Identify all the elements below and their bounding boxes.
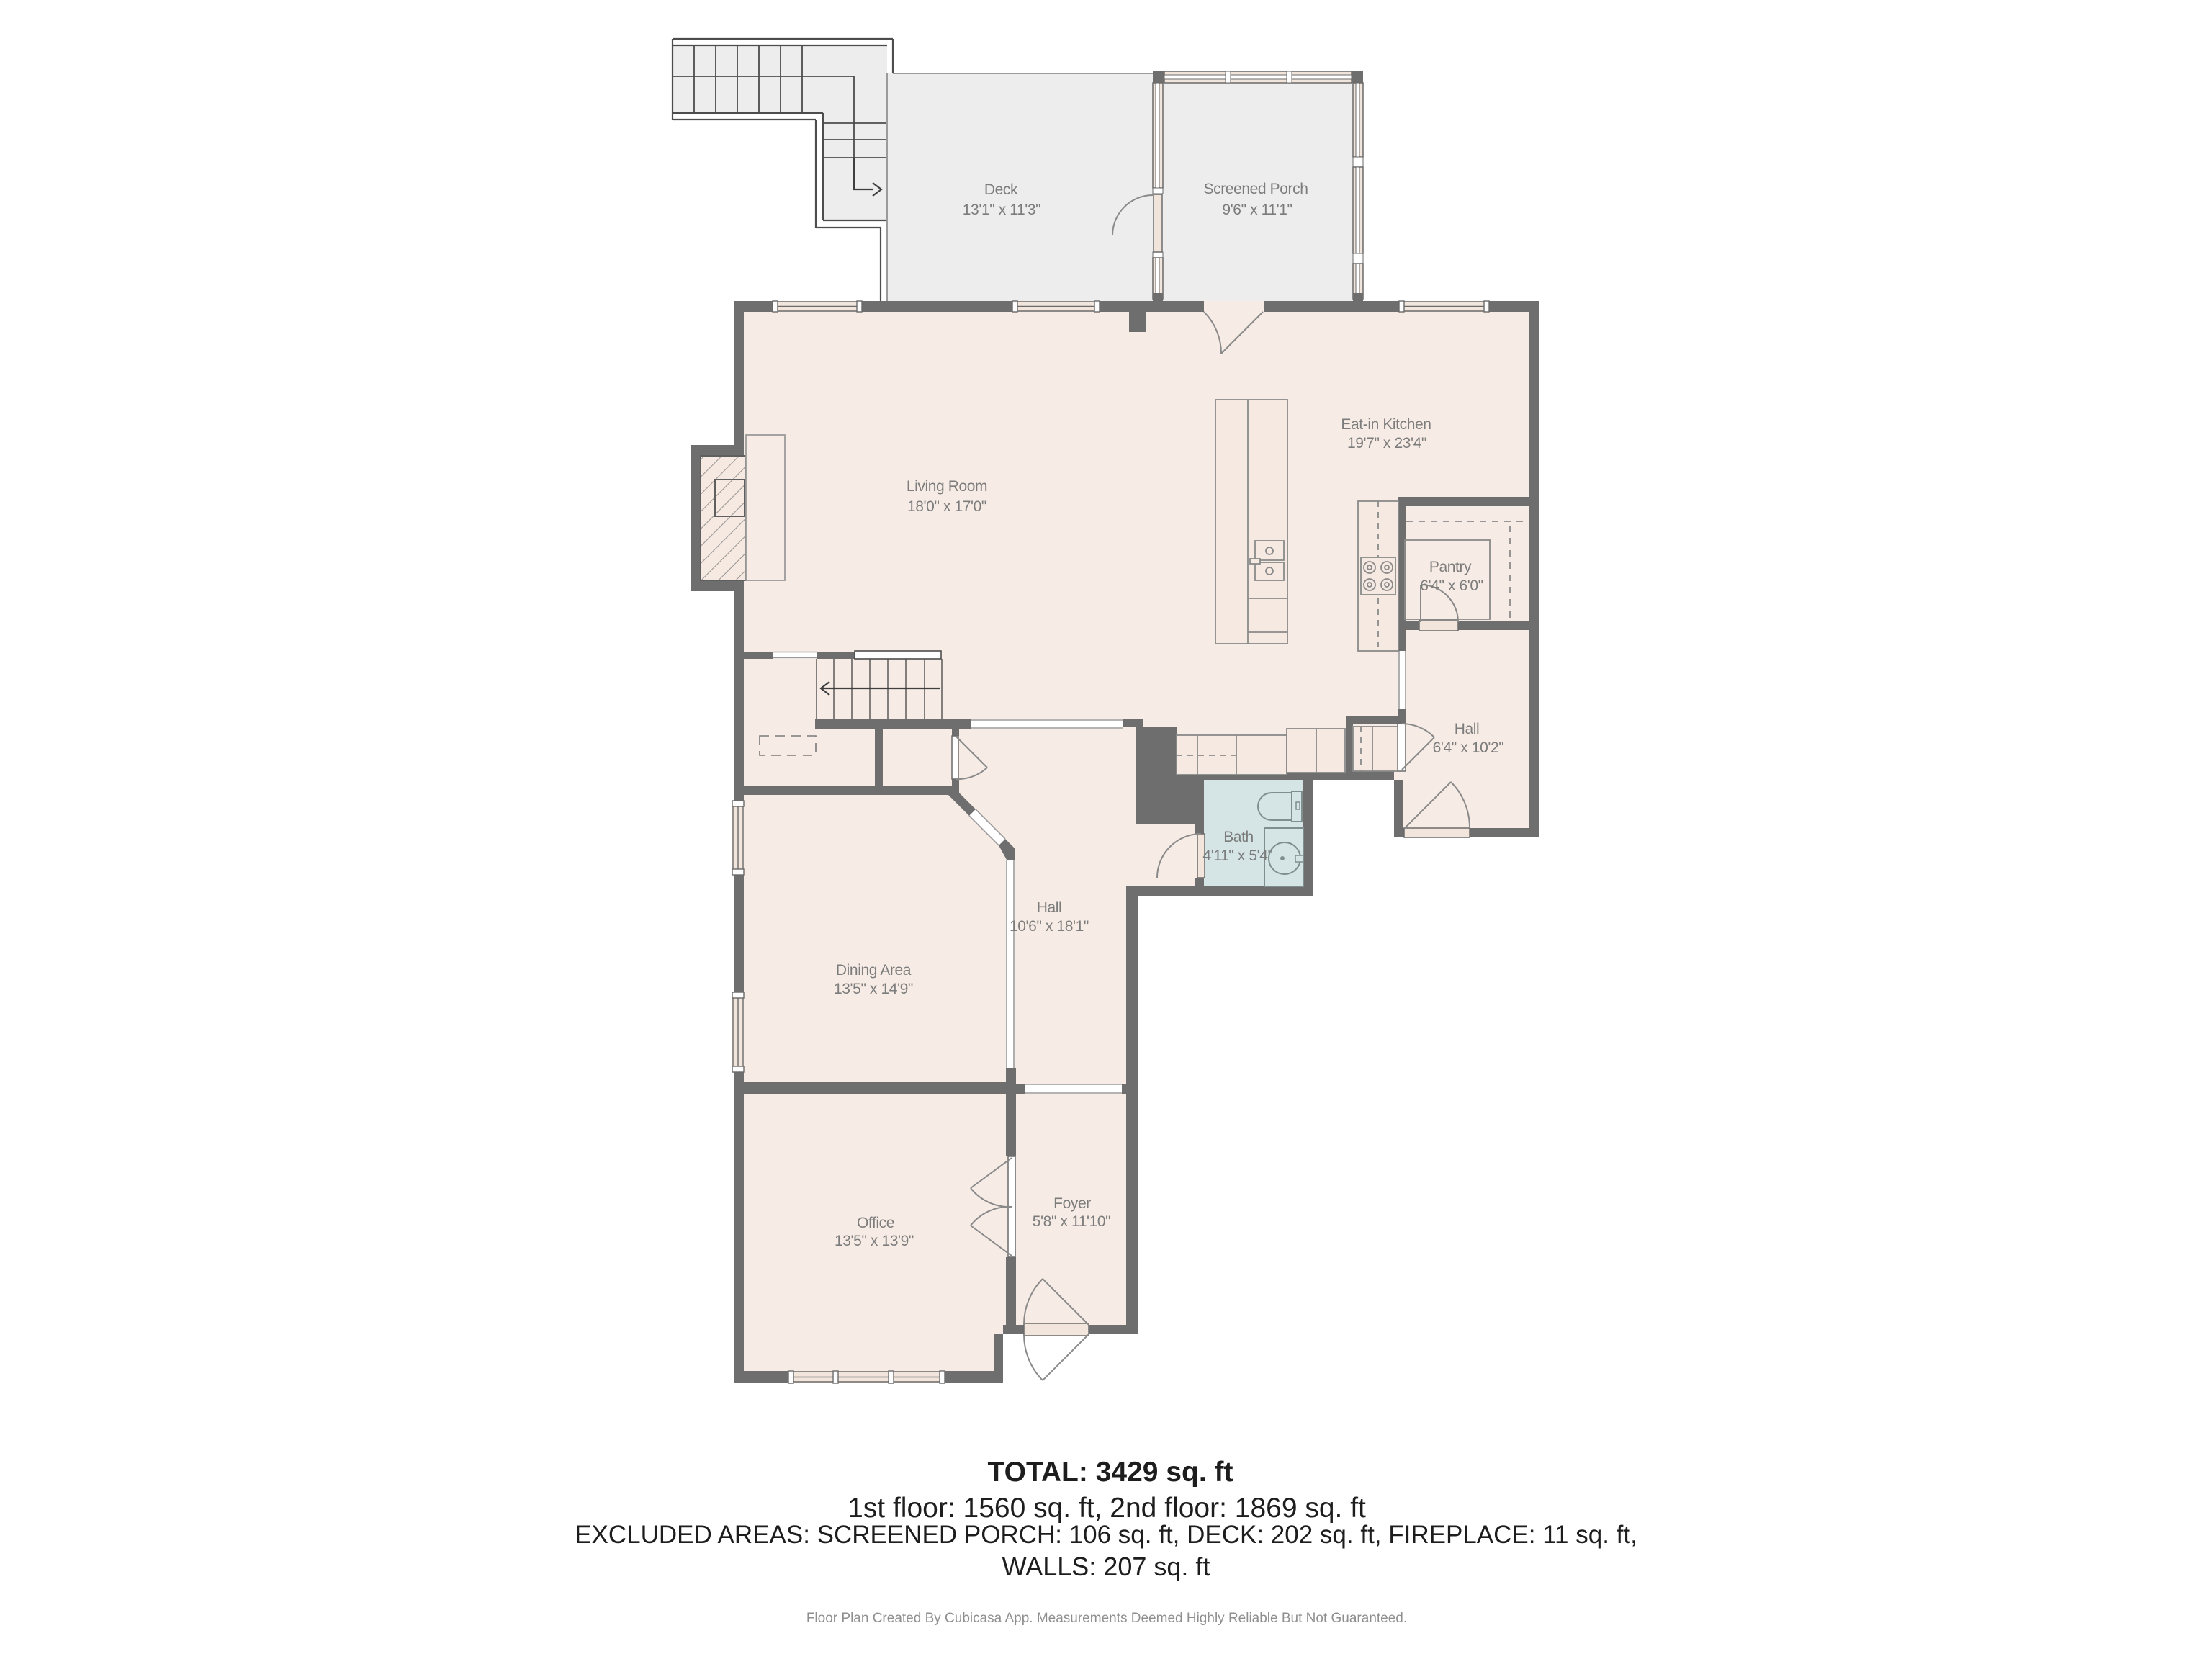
svg-text:13'5" x 13'9": 13'5" x 13'9"	[835, 1233, 914, 1249]
svg-text:Hall: Hall	[1455, 721, 1480, 737]
svg-text:Hall: Hall	[1037, 899, 1062, 916]
svg-text:Eat-in Kitchen: Eat-in Kitchen	[1341, 416, 1431, 433]
svg-text:Floor Plan Created By Cubicasa: Floor Plan Created By Cubicasa App. Meas…	[806, 1611, 1407, 1626]
svg-text:13'5" x 14'9": 13'5" x 14'9"	[834, 981, 913, 997]
svg-text:Dining Area: Dining Area	[836, 962, 912, 979]
svg-text:10'6" x 18'1": 10'6" x 18'1"	[1010, 918, 1089, 935]
svg-text:Pantry: Pantry	[1429, 559, 1472, 575]
svg-text:Screened Porch: Screened Porch	[1204, 181, 1308, 197]
svg-text:6'4" x 10'2": 6'4" x 10'2"	[1433, 739, 1504, 756]
svg-text:EXCLUDED AREAS: SCREENED PORCH: EXCLUDED AREAS: SCREENED PORCH: 106 sq. …	[575, 1521, 1637, 1549]
svg-text:1st floor: 1560 sq. ft, 2nd fl: 1st floor: 1560 sq. ft, 2nd floor: 1869 …	[848, 1493, 1366, 1524]
svg-text:18'0" x 17'0": 18'0" x 17'0"	[907, 498, 986, 515]
svg-text:13'1" x 11'3": 13'1" x 11'3"	[963, 202, 1040, 218]
svg-text:Bath: Bath	[1223, 829, 1254, 845]
svg-text:TOTAL: 3429 sq. ft: TOTAL: 3429 sq. ft	[988, 1457, 1233, 1488]
svg-text:Foyer: Foyer	[1053, 1195, 1091, 1212]
svg-text:5'8" x 11'10": 5'8" x 11'10"	[1033, 1213, 1110, 1230]
svg-text:9'6" x 11'1": 9'6" x 11'1"	[1222, 202, 1292, 218]
svg-text:Deck: Deck	[984, 181, 1018, 198]
svg-text:Office: Office	[857, 1215, 894, 1231]
svg-text:4'11" x 5'4": 4'11" x 5'4"	[1202, 848, 1272, 864]
svg-text:Living Room: Living Room	[907, 478, 987, 495]
svg-text:19'7" x 23'4": 19'7" x 23'4"	[1347, 435, 1426, 451]
svg-text:6'4" x 6'0": 6'4" x 6'0"	[1420, 577, 1483, 594]
svg-text:WALLS: 207 sq. ft: WALLS: 207 sq. ft	[1002, 1552, 1210, 1581]
